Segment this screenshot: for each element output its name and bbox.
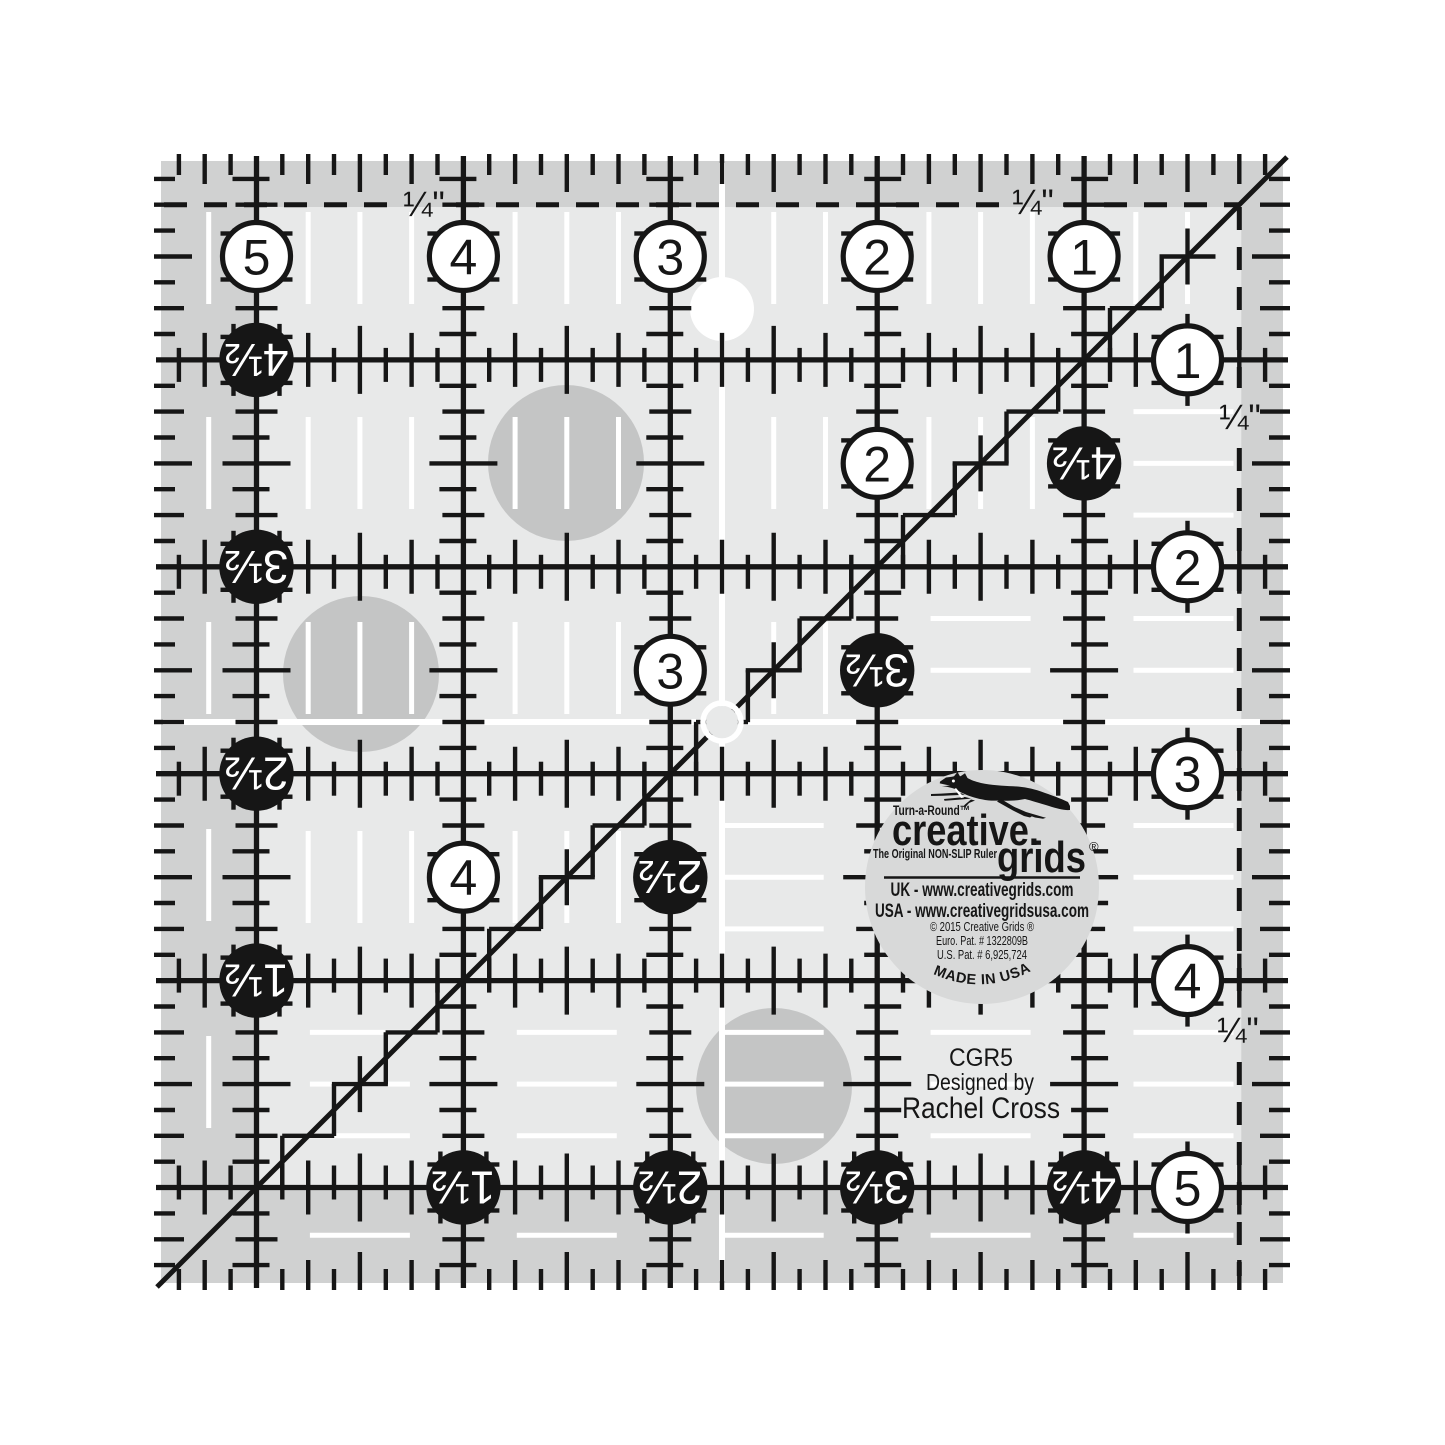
svg-text:3½: 3½ <box>225 541 289 593</box>
svg-text:¼": ¼" <box>1219 398 1261 437</box>
svg-text:2½: 2½ <box>638 1162 702 1214</box>
svg-text:3½: 3½ <box>845 644 909 696</box>
svg-text:5: 5 <box>243 230 271 286</box>
svg-text:The Original NON-SLIP Ruler: The Original NON-SLIP Ruler <box>873 847 997 861</box>
svg-text:USA - www.creativegridsusa.com: USA - www.creativegridsusa.com <box>875 901 1089 922</box>
svg-text:3½: 3½ <box>845 1162 909 1214</box>
svg-text:Rachel Cross: Rachel Cross <box>902 1092 1060 1125</box>
svg-text:2: 2 <box>863 230 891 286</box>
svg-text:2: 2 <box>863 436 891 492</box>
svg-text:5: 5 <box>1174 1161 1202 1217</box>
svg-text:CGR5: CGR5 <box>949 1044 1013 1072</box>
svg-text:3: 3 <box>656 230 684 286</box>
svg-text:¼": ¼" <box>1012 183 1054 222</box>
svg-text:© 2015 Creative Grids ®: © 2015 Creative Grids ® <box>930 920 1035 934</box>
svg-text:1: 1 <box>1174 333 1202 389</box>
svg-text:¼": ¼" <box>403 185 445 224</box>
svg-text:1: 1 <box>1070 230 1098 286</box>
svg-text:4: 4 <box>449 850 477 906</box>
svg-text:¼": ¼" <box>1217 1011 1259 1050</box>
svg-text:3: 3 <box>1174 747 1202 803</box>
svg-text:1½: 1½ <box>431 1162 495 1214</box>
svg-text:2½: 2½ <box>638 851 702 903</box>
svg-text:grids: grids <box>997 833 1086 882</box>
svg-text:1½: 1½ <box>225 955 289 1007</box>
svg-text:Euro. Pat. # 1322809B: Euro. Pat. # 1322809B <box>936 934 1028 948</box>
svg-text:3: 3 <box>656 643 684 699</box>
svg-text:4: 4 <box>449 230 477 286</box>
svg-text:2: 2 <box>1174 540 1202 596</box>
svg-text:4: 4 <box>1174 954 1202 1010</box>
svg-text:U.S. Pat. # 6,925,724: U.S. Pat. # 6,925,724 <box>937 948 1027 962</box>
svg-text:4½: 4½ <box>1052 1162 1116 1214</box>
svg-text:4½: 4½ <box>1052 437 1116 489</box>
svg-text:UK - www.creativegrids.com: UK - www.creativegrids.com <box>891 880 1074 901</box>
svg-text:®: ® <box>1089 839 1099 854</box>
svg-text:4½: 4½ <box>225 334 289 386</box>
svg-text:2½: 2½ <box>225 748 289 800</box>
